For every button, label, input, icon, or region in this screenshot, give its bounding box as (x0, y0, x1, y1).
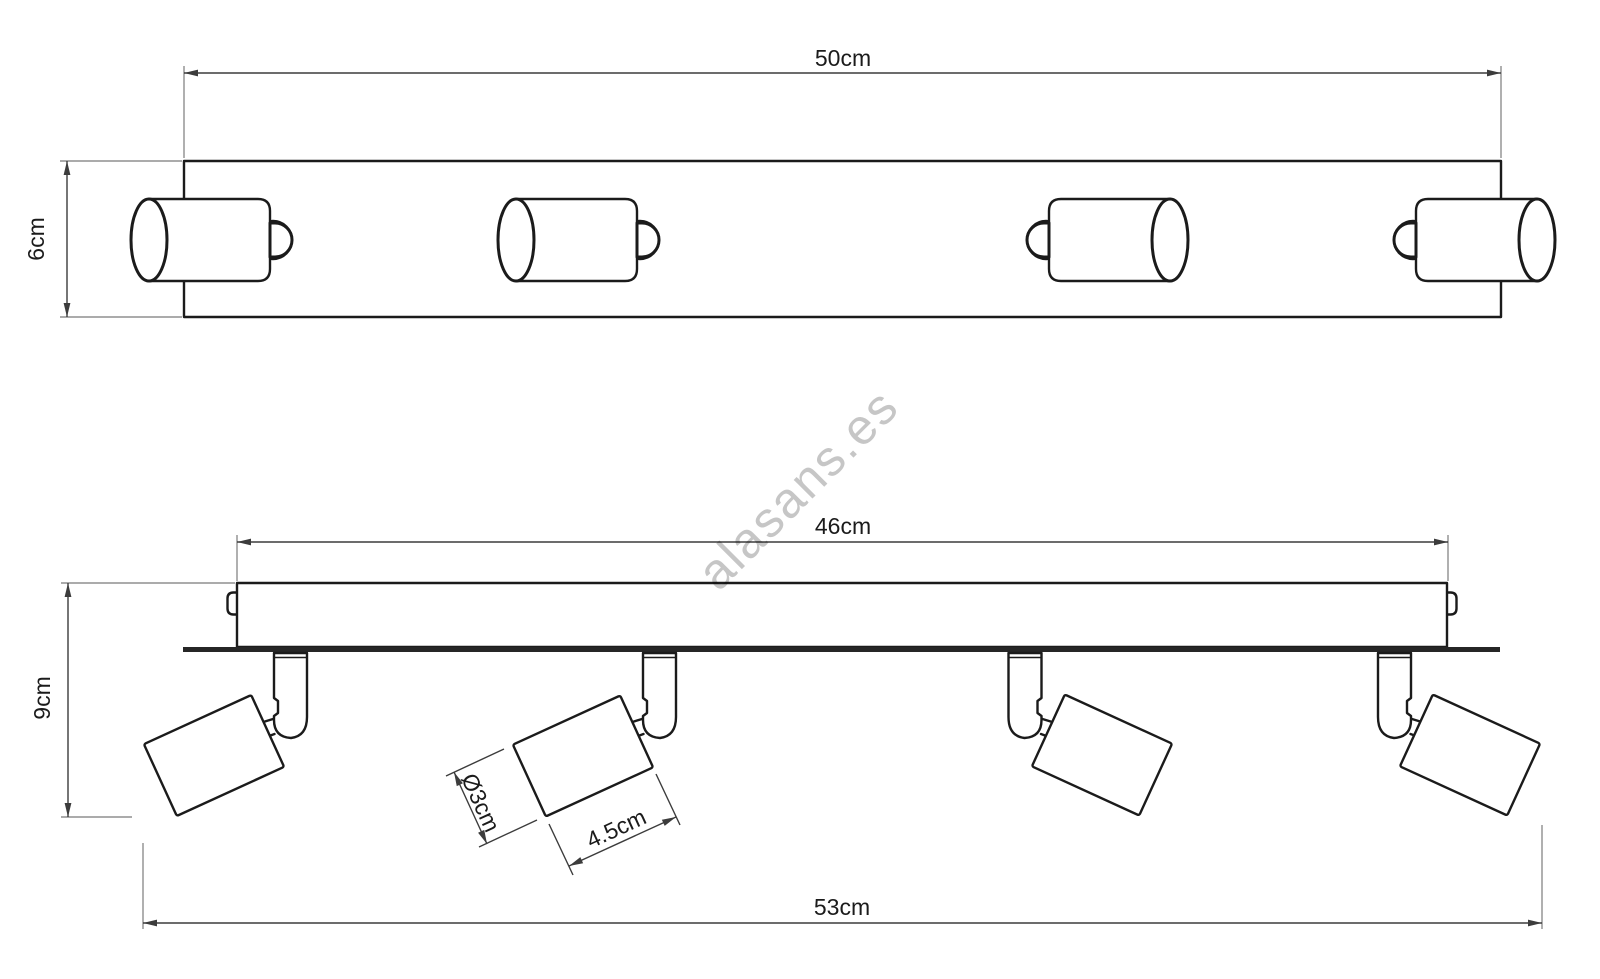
spotlight-cylinder-3 (1027, 199, 1188, 281)
dimension-label-width: 50cm (815, 45, 871, 71)
watermark: alasans.es (687, 378, 910, 601)
spotlight-head-3 (1032, 695, 1172, 816)
spotlight-cylinder-1 (131, 199, 292, 281)
top-view: 50cm 6cm (23, 45, 1555, 317)
extension-line (549, 824, 573, 875)
front-view-bar (237, 583, 1447, 647)
extension-line (656, 774, 680, 825)
spotlight-cylinder-4 (1394, 199, 1555, 281)
stem-3 (1009, 653, 1056, 739)
dimension-label-head-length: 4.5cm (582, 803, 650, 853)
top-view-bar (184, 161, 1501, 317)
front-view: Ø3cm 4.5cm 46cm 9cm 53cm (29, 513, 1542, 929)
stem-1 (260, 653, 307, 739)
mounting-plate (183, 647, 1500, 652)
stem-2 (629, 653, 676, 739)
dimension-label-head-diameter: Ø3cm (456, 769, 505, 836)
spotlight-head-2 (513, 696, 653, 817)
dimension-label-height: 9cm (29, 676, 55, 719)
dimension-label-total-width: 53cm (814, 894, 870, 920)
dimension-label-bar-width: 46cm (815, 513, 871, 539)
dimension-label-height: 6cm (23, 217, 49, 260)
technical-drawing: 50cm 6cm (0, 0, 1600, 979)
spotlight-cylinder-2 (498, 199, 659, 281)
spotlight-head-1 (144, 695, 284, 816)
spotlight-head-4 (1400, 695, 1540, 816)
drawing-svg: 50cm 6cm (0, 0, 1600, 979)
